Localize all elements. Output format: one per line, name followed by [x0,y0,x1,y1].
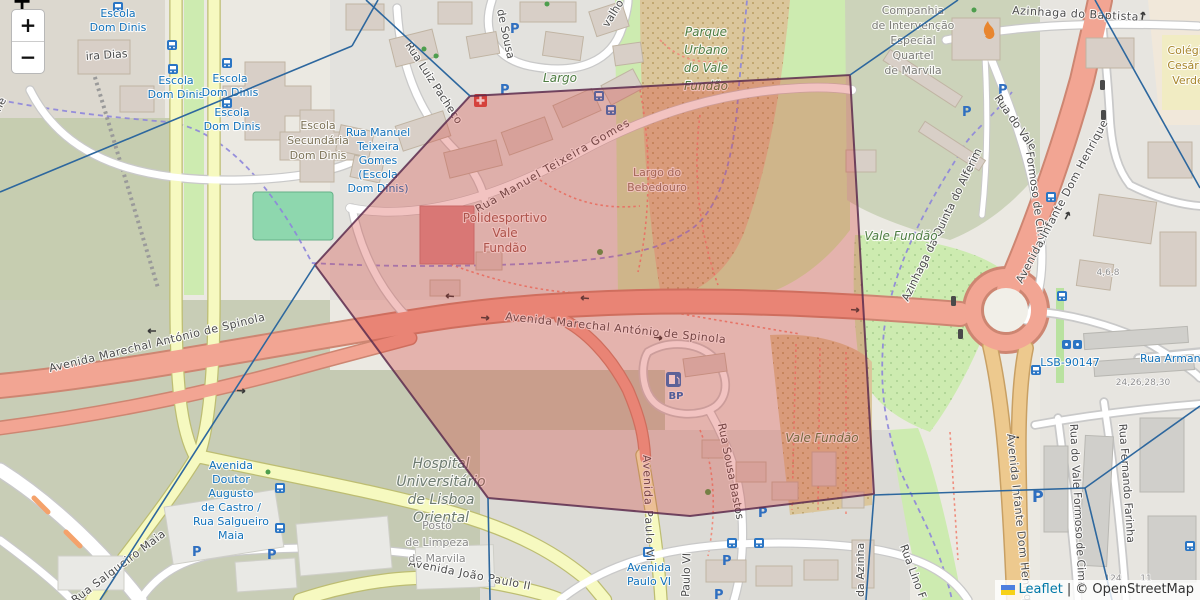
svg-text:Rua Salgueiro: Rua Salgueiro [193,515,269,528]
svg-text:Avenida: Avenida [209,459,253,472]
svg-text:4,6,8: 4,6,8 [1097,268,1120,278]
street-label-paulo-vi-fragment: Paulo VI [679,553,694,597]
zoom-out-button[interactable]: − [12,42,44,73]
svg-text:Dom Dinis: Dom Dinis [148,88,205,101]
svg-text:Escola: Escola [212,72,247,85]
svg-text:Companhia: Companhia [882,4,945,17]
svg-text:P: P [192,545,202,560]
svg-text:Especial: Especial [890,34,935,47]
svg-text:Escola: Escola [100,7,135,20]
svg-text:P: P [722,554,732,569]
svg-text:Posto: Posto [422,519,452,532]
svg-text:Urbano: Urbano [684,43,728,57]
svg-text:de Marvila: de Marvila [884,64,941,77]
svg-text:Dom Dinis: Dom Dinis [204,120,261,133]
svg-text:Quartel: Quartel [892,49,933,62]
svg-text:de Castro /: de Castro / [201,501,261,514]
svg-text:Secundária: Secundária [287,134,349,147]
place-label-largo: Largo [543,71,577,85]
attribution-bar: Leaflet | © OpenStreetMap [995,580,1200,600]
svg-text:de Intervenção: de Intervenção [872,19,955,32]
transit-label-armandinho: Rua Armandinho [1140,352,1200,365]
svg-text:Colégio: Colégio [1167,44,1200,57]
street-label-azinha-fragment: da Azinha [854,543,867,597]
svg-text:de Limpeza: de Limpeza [405,536,468,549]
svg-text:Maia: Maia [218,529,244,542]
svg-text:de Lisboa: de Lisboa [408,492,475,508]
svg-text:(Escola: (Escola [358,168,398,181]
attribution-separator: | [1067,582,1071,597]
place-label-colegio: Colégio Cesário Verde [1167,44,1200,87]
svg-text:de Marvila: de Marvila [408,552,465,565]
svg-text:P: P [714,588,724,600]
osm-attribution[interactable]: © OpenStreetMap [1075,582,1194,597]
zoom-in-button[interactable]: + [12,10,44,42]
transit-label-lsb: LSB-90147 [1040,356,1100,369]
leaflet-link[interactable]: Leaflet [1019,582,1063,597]
ukraine-flag-icon [1001,585,1015,595]
svg-text:Dom Dinis: Dom Dinis [90,21,147,34]
svg-text:P: P [962,105,972,120]
svg-text:24,26,28,30: 24,26,28,30 [1116,378,1171,388]
svg-text:Rua Manuel: Rua Manuel [346,126,410,139]
svg-text:Avenida: Avenida [627,561,671,574]
svg-text:Augusto: Augusto [208,487,253,500]
svg-text:Parque: Parque [685,25,727,39]
svg-text:Escola: Escola [214,106,249,119]
svg-text:Escola: Escola [158,74,193,87]
map-canvas[interactable]: PPP PPP PP PP [0,0,1200,600]
svg-text:Escola: Escola [300,119,335,132]
svg-text:Paulo VI: Paulo VI [627,575,671,588]
zoom-control: + − [11,9,45,74]
svg-text:Verde: Verde [1172,74,1200,87]
svg-text:Cesário: Cesário [1167,59,1200,72]
place-label-vale-fundao-upper: Vale Fundão [864,229,937,243]
svg-text:Teixeira: Teixeira [356,140,399,153]
svg-text:Dom Dinis: Dom Dinis [290,149,347,162]
svg-text:P: P [267,548,277,563]
map-container[interactable]: PPP PPP PP PP [0,0,1200,600]
svg-text:do Vale: do Vale [684,61,728,75]
transit-label-paulo-vi-stop: Avenida Paulo VI [627,561,671,588]
svg-text:Doutor: Doutor [212,473,250,486]
svg-text:Gomes: Gomes [359,154,398,167]
